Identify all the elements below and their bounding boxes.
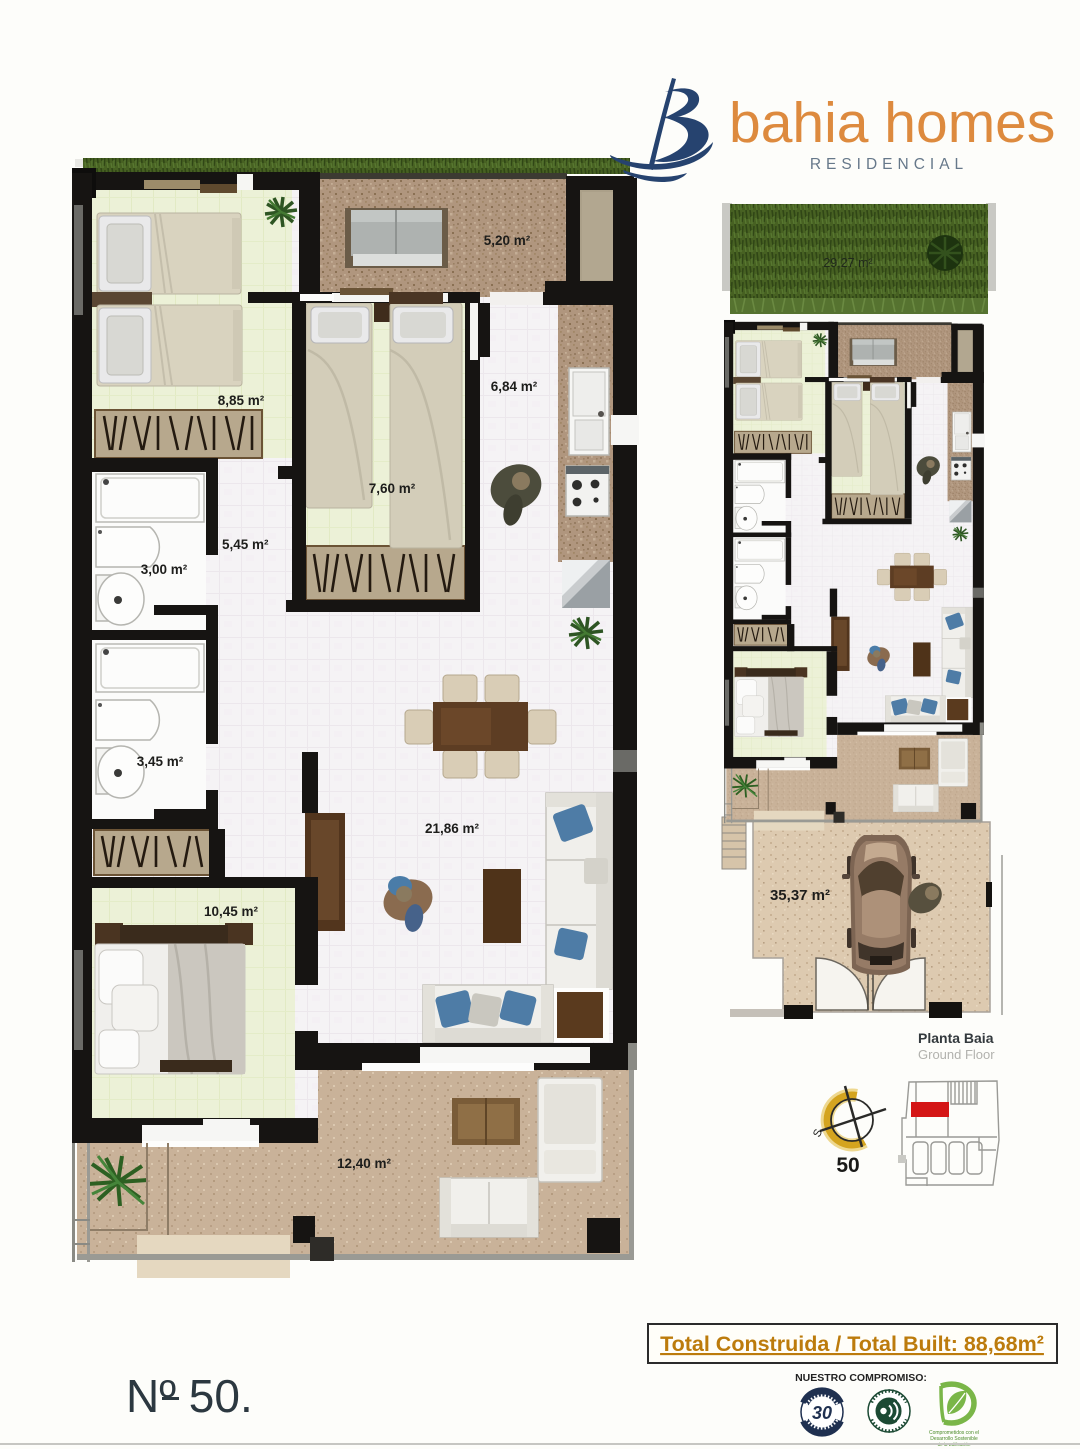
svg-text:Nº 50.: Nº 50. xyxy=(126,1370,253,1422)
svg-text:35,37 m²: 35,37 m² xyxy=(770,887,830,904)
svg-text:RESIDENCIAL: RESIDENCIAL xyxy=(810,156,968,173)
svg-text:21,86 m²: 21,86 m² xyxy=(425,821,480,836)
svg-text:3,45 m²: 3,45 m² xyxy=(137,754,184,769)
svg-text:30: 30 xyxy=(812,1403,832,1423)
svg-text:10,45 m²: 10,45 m² xyxy=(204,904,259,919)
svg-text:7,60 m²: 7,60 m² xyxy=(369,481,416,496)
svg-text:Planta Baia: Planta Baia xyxy=(918,1030,994,1046)
svg-text:8,85 m²: 8,85 m² xyxy=(218,393,265,408)
svg-text:29,27 m²: 29,27 m² xyxy=(823,256,872,270)
svg-text:bahia homes: bahia homes xyxy=(729,91,1055,155)
svg-text:3,00 m²: 3,00 m² xyxy=(141,562,188,577)
svg-text:50: 50 xyxy=(836,1154,859,1177)
svg-text:Total Construida / Total Built: Total Construida / Total Built: 88,68m² xyxy=(660,1332,1044,1356)
svg-text:5,45 m²: 5,45 m² xyxy=(222,537,269,552)
svg-text:6,84 m²: 6,84 m² xyxy=(491,379,538,394)
svg-text:NUESTRO COMPROMISO:: NUESTRO COMPROMISO: xyxy=(795,1372,927,1384)
svg-text:5,20 m²: 5,20 m² xyxy=(484,233,531,248)
svg-text:12,40 m²: 12,40 m² xyxy=(337,1156,392,1171)
svg-text:Ground Floor: Ground Floor xyxy=(918,1047,995,1062)
